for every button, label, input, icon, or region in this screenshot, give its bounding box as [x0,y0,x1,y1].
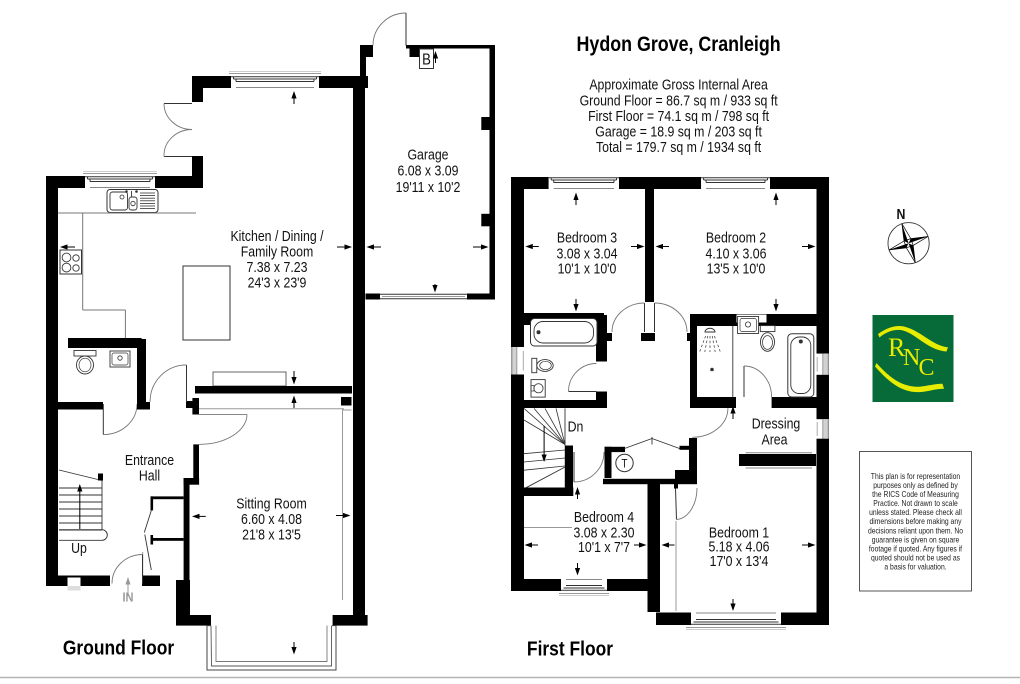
svg-text:B: B [422,52,431,69]
svg-text:Dn: Dn [568,419,584,435]
svg-text:Area: Area [762,431,788,447]
svg-text:24'3 x 23'9: 24'3 x 23'9 [248,275,307,291]
svg-text:Entrance: Entrance [125,452,174,468]
svg-text:IN: IN [122,590,133,605]
svg-text:Dressing: Dressing [752,416,801,432]
svg-text:Bedroom 4: Bedroom 4 [574,509,635,525]
svg-text:4.10 x 3.06: 4.10 x 3.06 [706,246,767,262]
svg-text:Hall: Hall [139,467,160,483]
svg-text:N: N [897,206,906,222]
svg-text:Garage = 18.9 sq m / 203 sq ft: Garage = 18.9 sq m / 203 sq ft [595,124,762,140]
svg-text:19'11 x 10'2: 19'11 x 10'2 [396,179,461,195]
svg-text:6.08 x 3.09: 6.08 x 3.09 [398,163,459,179]
svg-text:Sitting Room: Sitting Room [236,496,306,512]
svg-text:7.38 x 7.23: 7.38 x 7.23 [247,259,308,275]
svg-text:Bedroom 2: Bedroom 2 [706,230,766,246]
svg-text:Kitchen / Dining /: Kitchen / Dining / [230,228,323,244]
svg-text:13'5 x 10'0: 13'5 x 10'0 [707,261,766,277]
svg-text:Total = 179.7 sq m / 1934 sq f: Total = 179.7 sq m / 1934 sq ft [596,139,761,155]
svg-text:Ground Floor: Ground Floor [63,637,175,660]
svg-text:Family Room: Family Room [241,244,314,260]
svg-text:Up: Up [71,540,87,556]
svg-text:Hydon Grove, Cranleigh: Hydon Grove, Cranleigh [577,33,781,57]
svg-text:Bedroom 3: Bedroom 3 [557,230,617,246]
svg-text:First Floor = 74.1 sq m / 798: First Floor = 74.1 sq m / 798 sq ft [588,108,769,124]
svg-text:a basis for valuation.: a basis for valuation. [884,562,946,572]
svg-text:17'0 x 13'4: 17'0 x 13'4 [710,553,769,569]
svg-text:10'1 x 7'7: 10'1 x 7'7 [578,539,630,555]
svg-text:10'1 x 10'0: 10'1 x 10'0 [558,261,617,277]
svg-text:6.60 x 4.08: 6.60 x 4.08 [241,511,302,527]
svg-text:T: T [622,458,628,471]
svg-text:First Floor: First Floor [527,638,614,661]
svg-text:Approximate Gross Internal Are: Approximate Gross Internal Area [589,77,768,93]
svg-text:Garage: Garage [407,147,448,163]
svg-text:C: C [919,355,935,381]
svg-text:3.08 x 3.04: 3.08 x 3.04 [557,246,618,262]
svg-text:Ground Floor = 86.7 sq m / 933: Ground Floor = 86.7 sq m / 933 sq ft [580,92,778,108]
svg-text:21'8 x 13'5: 21'8 x 13'5 [242,527,301,543]
